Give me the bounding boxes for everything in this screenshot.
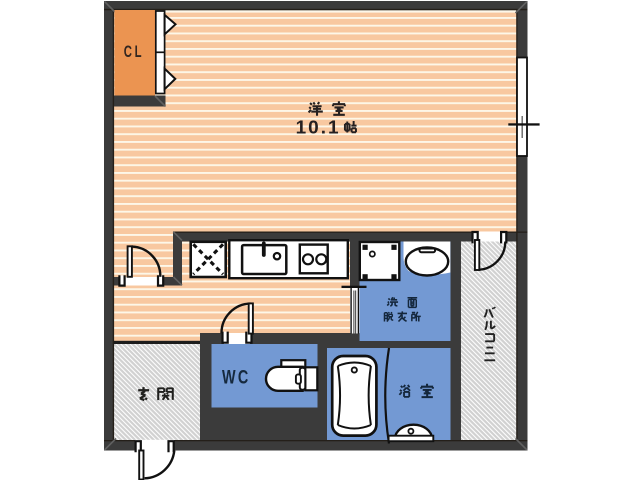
svg-text:10.1: 10.1 <box>296 116 341 137</box>
svg-text:WC: WC <box>222 368 251 389</box>
svg-text:CL: CL <box>124 42 145 61</box>
